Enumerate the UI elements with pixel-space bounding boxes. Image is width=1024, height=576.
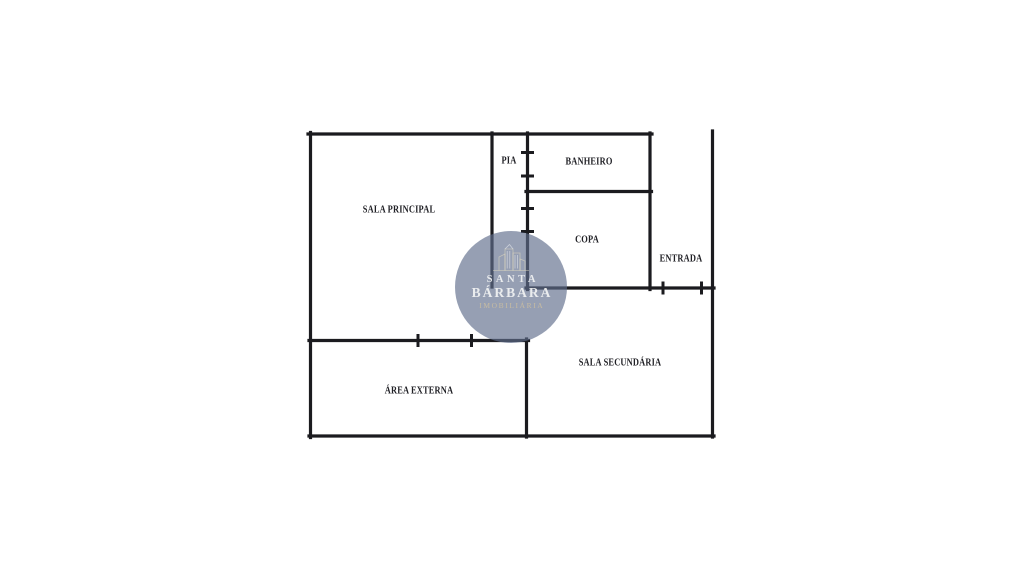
- room-label-area-externa: ÁREA EXTERNA: [385, 386, 454, 397]
- buildings-logo-icon: [491, 243, 531, 274]
- room-label-banheiro: BANHEIRO: [565, 157, 612, 168]
- watermark-brand-line2: BÁRBARA: [470, 286, 553, 301]
- watermark-badge: SANTA BÁRBARA IMOBILIÁRIA: [455, 231, 567, 343]
- room-label-pia: PIA: [502, 156, 517, 167]
- room-label-sala-principal: SALA PRINCIPAL: [363, 205, 435, 216]
- watermark-brand-line3: IMOBILIÁRIA: [478, 301, 545, 312]
- watermark-brand-line1: SANTA: [483, 274, 539, 286]
- room-label-copa: COPA: [575, 235, 599, 246]
- room-label-entrada: ENTRADA: [660, 254, 703, 265]
- floor-plan-canvas: SALA PRINCIPAL PIA BANHEIRO COPA ENTRADA…: [0, 0, 1024, 576]
- room-label-sala-secundaria: SALA SECUNDÁRIA: [579, 358, 662, 369]
- door-ticks: [418, 153, 702, 348]
